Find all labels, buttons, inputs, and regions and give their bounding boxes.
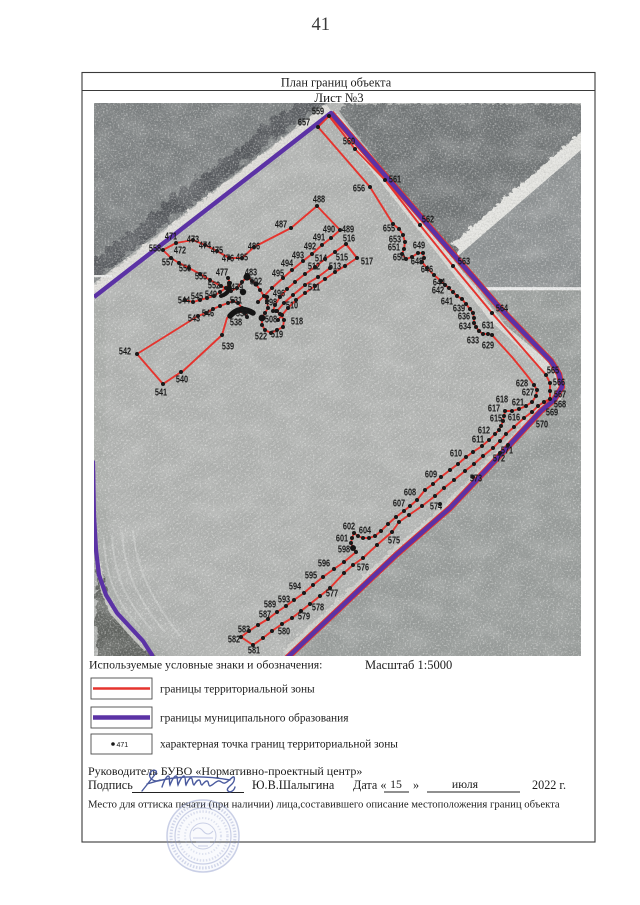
svg-text:Лист №3: Лист №3 bbox=[314, 90, 363, 105]
svg-text:531: 531 bbox=[230, 295, 243, 306]
svg-text:610: 610 bbox=[450, 448, 463, 459]
svg-text:634: 634 bbox=[459, 321, 472, 332]
svg-text:510: 510 bbox=[286, 300, 299, 311]
svg-text:601: 601 bbox=[336, 533, 349, 544]
svg-text:487: 487 bbox=[275, 219, 288, 230]
svg-text:538: 538 bbox=[230, 317, 243, 328]
svg-text:589: 589 bbox=[264, 599, 277, 610]
svg-text:555: 555 bbox=[195, 271, 208, 282]
svg-text:471: 471 bbox=[165, 231, 178, 242]
svg-text:569: 569 bbox=[546, 407, 559, 418]
svg-text:641: 641 bbox=[441, 296, 454, 307]
svg-text:характерная точка границ терри: характерная точка границ территориальной… bbox=[160, 739, 398, 751]
svg-text:598: 598 bbox=[338, 544, 351, 555]
svg-text:583: 583 bbox=[238, 624, 251, 635]
svg-text:633: 633 bbox=[467, 335, 480, 346]
svg-text:540: 540 bbox=[176, 374, 189, 385]
svg-text:515: 515 bbox=[336, 252, 349, 263]
svg-text:572: 572 bbox=[493, 453, 506, 464]
svg-text:580: 580 bbox=[278, 626, 291, 637]
svg-text:566: 566 bbox=[553, 377, 566, 388]
svg-text:546: 546 bbox=[202, 308, 215, 319]
svg-text:621: 621 bbox=[512, 397, 525, 408]
svg-text:474: 474 bbox=[199, 240, 212, 251]
svg-text:559: 559 bbox=[312, 106, 325, 117]
svg-text:562: 562 bbox=[422, 214, 435, 225]
svg-text:642: 642 bbox=[432, 285, 445, 296]
svg-text:581: 581 bbox=[248, 645, 261, 656]
svg-text:577: 577 bbox=[326, 588, 339, 599]
svg-text:564: 564 bbox=[496, 303, 509, 314]
svg-text:519: 519 bbox=[271, 329, 284, 340]
svg-text:границы муниципального образов: границы муниципального образования bbox=[160, 713, 349, 725]
svg-text:522: 522 bbox=[255, 331, 268, 342]
svg-text:579: 579 bbox=[298, 611, 311, 622]
svg-text:границы территориальной зоны: границы территориальной зоны bbox=[160, 684, 315, 696]
svg-text:582: 582 bbox=[228, 634, 241, 645]
svg-text:646: 646 bbox=[421, 264, 434, 275]
svg-text:Используемые условные знаки и: Используемые условные знаки и обозначени… bbox=[89, 658, 322, 672]
svg-text:593: 593 bbox=[278, 594, 291, 605]
svg-text:570: 570 bbox=[536, 419, 549, 430]
svg-text:545: 545 bbox=[191, 291, 204, 302]
svg-text:539: 539 bbox=[222, 341, 235, 352]
svg-text:655: 655 bbox=[383, 223, 396, 234]
svg-text:511: 511 bbox=[308, 282, 321, 293]
svg-text:560: 560 bbox=[343, 136, 356, 147]
svg-text:608: 608 bbox=[404, 487, 417, 498]
svg-text:Подпись: Подпись bbox=[88, 778, 133, 792]
svg-text:518: 518 bbox=[291, 316, 304, 327]
svg-text:Масштаб 1:5000: Масштаб 1:5000 bbox=[365, 658, 452, 672]
svg-text:2022 г.: 2022 г. bbox=[532, 778, 566, 792]
svg-text:542: 542 bbox=[119, 346, 132, 357]
svg-text:563: 563 bbox=[458, 256, 471, 267]
svg-text:607: 607 bbox=[393, 498, 406, 509]
svg-text:543: 543 bbox=[188, 313, 201, 324]
svg-text:574: 574 bbox=[430, 501, 443, 512]
svg-text:573: 573 bbox=[470, 473, 483, 484]
svg-text:556: 556 bbox=[179, 263, 192, 274]
svg-text:561: 561 bbox=[389, 174, 402, 185]
svg-text:508: 508 bbox=[265, 314, 278, 325]
svg-text:492: 492 bbox=[304, 241, 317, 252]
svg-text:604: 604 bbox=[359, 525, 372, 536]
svg-text:616: 616 bbox=[508, 412, 521, 423]
svg-text:15: 15 bbox=[390, 777, 402, 791]
svg-text:558: 558 bbox=[149, 243, 162, 254]
svg-text:611: 611 bbox=[472, 434, 485, 445]
svg-text:472: 472 bbox=[174, 245, 187, 256]
svg-text:595: 595 bbox=[305, 570, 318, 581]
svg-text:544: 544 bbox=[178, 295, 191, 306]
svg-text:578: 578 bbox=[312, 602, 325, 613]
svg-text:486: 486 bbox=[248, 241, 261, 252]
svg-text:41: 41 bbox=[312, 15, 331, 35]
svg-text:575: 575 bbox=[388, 535, 401, 546]
svg-text:485: 485 bbox=[236, 252, 249, 263]
svg-text:649: 649 bbox=[413, 240, 426, 251]
svg-text:471: 471 bbox=[117, 742, 129, 749]
svg-text:493: 493 bbox=[292, 250, 305, 261]
svg-text:609: 609 bbox=[425, 469, 438, 480]
svg-text:650: 650 bbox=[393, 252, 406, 263]
svg-text:498: 498 bbox=[265, 297, 278, 308]
svg-text:565: 565 bbox=[547, 365, 560, 376]
svg-text:Руководитель БУВО «Нормативно-: Руководитель БУВО «Нормативно-проектный … bbox=[88, 764, 362, 778]
svg-text:631: 631 bbox=[482, 320, 495, 331]
svg-text:594: 594 bbox=[289, 581, 302, 592]
svg-text:502: 502 bbox=[250, 276, 263, 287]
svg-text:495: 495 bbox=[272, 268, 285, 279]
svg-text:656: 656 bbox=[353, 183, 366, 194]
svg-text:516: 516 bbox=[343, 233, 356, 244]
svg-text:488: 488 bbox=[313, 194, 326, 205]
svg-text:596: 596 bbox=[318, 558, 331, 569]
svg-text:473: 473 bbox=[187, 234, 200, 245]
svg-text:602: 602 bbox=[343, 521, 356, 532]
svg-text:Место для оттиска печати (при: Место для оттиска печати (при наличии) л… bbox=[88, 799, 560, 811]
svg-text:549: 549 bbox=[205, 289, 218, 300]
svg-text:541: 541 bbox=[155, 387, 168, 398]
svg-text:»: » bbox=[413, 778, 419, 792]
svg-text:477: 477 bbox=[216, 267, 229, 278]
svg-text:517: 517 bbox=[361, 256, 374, 267]
svg-text:587: 587 bbox=[259, 609, 272, 620]
svg-text:615: 615 bbox=[490, 413, 503, 424]
svg-text:июля: июля bbox=[452, 777, 479, 791]
svg-text:557: 557 bbox=[162, 257, 175, 268]
svg-text:514: 514 bbox=[315, 253, 328, 264]
svg-text:576: 576 bbox=[357, 562, 370, 573]
svg-text:Дата «: Дата « bbox=[353, 778, 386, 792]
svg-text:657: 657 bbox=[298, 117, 311, 128]
svg-text:План границ объекта: План границ объекта bbox=[281, 76, 392, 90]
svg-text:479: 479 bbox=[231, 282, 244, 293]
svg-text:Ю.В.Шалыгина: Ю.В.Шалыгина bbox=[252, 778, 335, 792]
svg-text:629: 629 bbox=[482, 340, 495, 351]
svg-text:476: 476 bbox=[222, 253, 235, 264]
